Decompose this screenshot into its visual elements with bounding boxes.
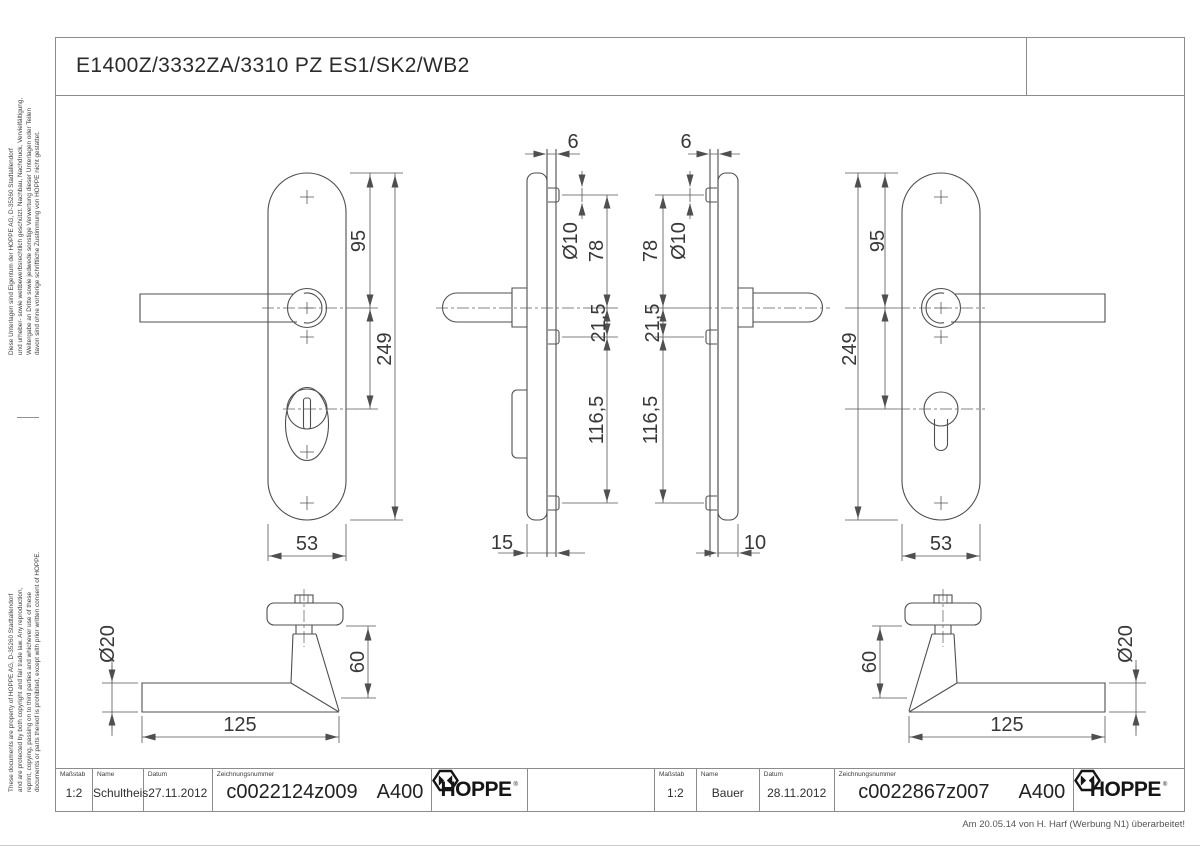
technical-drawing-page: { "drawing": { "title": "E1400Z/3332ZA/3… (0, 0, 1200, 849)
scale-value: 1:2 (56, 786, 92, 800)
drawing-number-cell-left: Zeichnungsnummer c0022124z009 A400 (213, 769, 433, 811)
date-value: 27.11.2012 (144, 786, 212, 800)
date-value: 28.11.2012 (760, 786, 834, 800)
note-line: documents or parts thereof is prohibited… (34, 432, 43, 792)
note-line: These documents are property of HOPPE AG… (8, 432, 17, 792)
scale-cell-right: Maßstab 1:2 (655, 769, 697, 811)
margin-separator-line (17, 417, 39, 418)
drawing-number-label: Zeichnungsnummer (217, 771, 274, 778)
date-cell-left: Datum 27.11.2012 (144, 769, 213, 811)
name-label: Name (701, 771, 718, 778)
copyright-note-german: Diese Unterlagen sind Eigentum der HOPPE… (8, 39, 44, 355)
hoppe-logo-text: HOPPE (1090, 778, 1161, 802)
revision-note: Am 20.05.14 von H. Harf (Werbung N1) übe… (962, 819, 1185, 830)
name-cell-left: Name Schultheis (93, 769, 144, 811)
registered-mark: ® (514, 782, 518, 788)
date-label: Datum (764, 771, 783, 778)
note-line: und urheber- sowie wettbewerbsrechtlich … (17, 39, 26, 355)
name-label: Name (97, 771, 114, 778)
scale-label: Maßstab (60, 771, 85, 778)
note-line: and are protected by both copyright and … (17, 432, 26, 792)
brand-cell-right: HOPPE ® (1074, 769, 1184, 811)
drawing-title: E1400Z/3332ZA/3310 PZ ES1/SK2/WB2 (76, 54, 470, 78)
name-value: Schultheis (93, 786, 143, 800)
scale-value: 1:2 (655, 786, 696, 800)
drawing-code: A400 (1018, 781, 1065, 804)
scale-label: Maßstab (659, 771, 684, 778)
name-cell-right: Name Bauer (697, 769, 760, 811)
scale-cell-left: Maßstab 1:2 (56, 769, 93, 811)
drawing-number-value: c0022124z009 (213, 781, 372, 804)
brand-cell-left: HOPPE ® (432, 769, 528, 811)
name-value: Bauer (697, 786, 759, 800)
title-block-row: Maßstab 1:2 Name Schultheis Datum 27.11.… (56, 768, 1184, 811)
drawing-number-cell-right: Zeichnungsnummer c0022867z007 A400 (835, 769, 1075, 811)
hoppe-logo-text: HOPPE (441, 778, 512, 802)
empty-cell (528, 769, 655, 811)
drawing-frame: E1400Z/3332ZA/3310 PZ ES1/SK2/WB2 Maßsta… (55, 37, 1185, 812)
page-edge-line (0, 845, 1200, 846)
registered-mark: ® (1163, 782, 1167, 788)
drawing-number-label: Zeichnungsnummer (839, 771, 896, 778)
date-label: Datum (148, 771, 167, 778)
drawing-number-value: c0022867z007 (835, 781, 1014, 804)
note-line: reprint, copying, passing on to third pa… (26, 432, 35, 792)
note-line: Diese Unterlagen sind Eigentum der HOPPE… (8, 39, 17, 355)
date-cell-right: Datum 28.11.2012 (760, 769, 835, 811)
drawing-code: A400 (377, 781, 424, 804)
note-line: davon sind ohne vorherige schriftliche Z… (34, 39, 43, 355)
copyright-note-english: These documents are property of HOPPE AG… (8, 432, 44, 792)
title-bar: E1400Z/3332ZA/3310 PZ ES1/SK2/WB2 (56, 38, 1184, 96)
title-bar-divider (1026, 38, 1027, 95)
note-line: Weitergabe an Dritte sowie jedwede sonst… (26, 39, 35, 355)
